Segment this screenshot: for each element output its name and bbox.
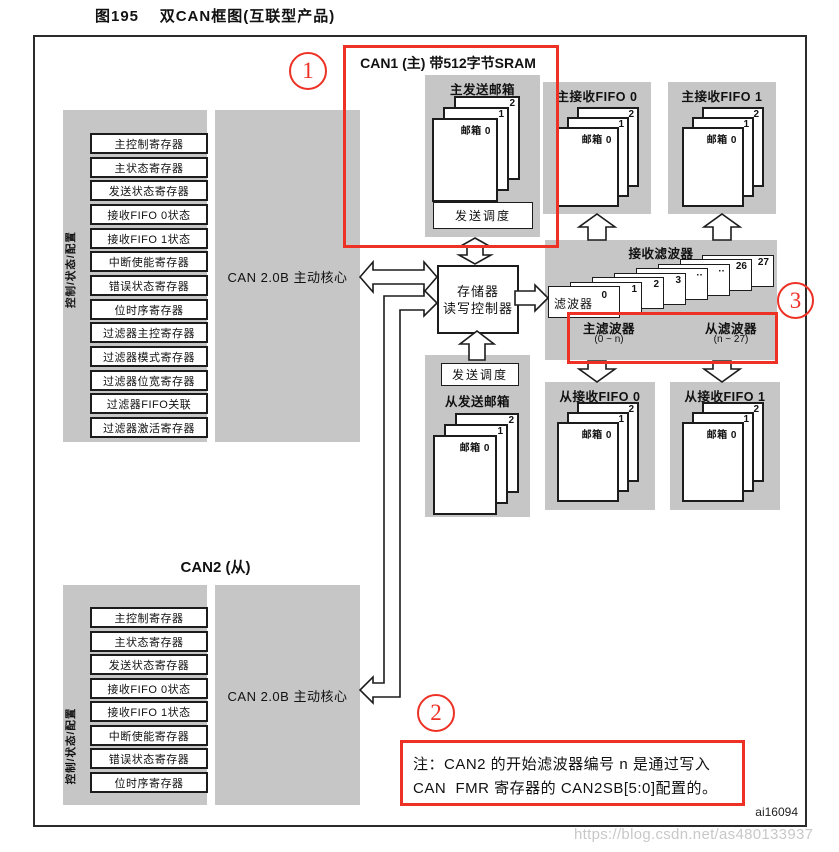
highlight-rect-can1-sram bbox=[343, 45, 559, 248]
note-line1: 注：CAN2 的开始滤波器编号 n 是通过写入 bbox=[413, 753, 710, 774]
arrow-down-filters-to-slave-fifo0 bbox=[579, 361, 615, 382]
arrow-up-filters-to-master-fifo0 bbox=[579, 214, 615, 240]
arrow-up-filters-to-master-fifo1 bbox=[704, 214, 740, 240]
arrow-bidir-memctrl-can2core bbox=[360, 290, 437, 703]
highlight-rect-filter-split bbox=[567, 312, 778, 364]
arrow-down-filters-to-slave-fifo1 bbox=[704, 361, 740, 382]
figure-title: 图195 双CAN框图(互联型产品) bbox=[95, 5, 335, 26]
annotation-circle-2: 2 bbox=[417, 694, 455, 732]
note-line2: CAN FMR 寄存器的 CAN2SB[5:0]配置的。 bbox=[413, 777, 718, 798]
note-box: 注：CAN2 的开始滤波器编号 n 是通过写入 CAN FMR 寄存器的 CAN… bbox=[400, 740, 745, 806]
annotation-circle-3: 3 bbox=[777, 282, 814, 319]
arrow-right-memctrl-to-filters bbox=[515, 285, 548, 311]
watermark-text: https://blog.csdn.net/as480133937 bbox=[574, 826, 813, 843]
arrow-up-slave-scheduler-to-memctrl bbox=[460, 331, 494, 360]
arrow-bidir-can1core-memctrl bbox=[360, 262, 437, 292]
annotation-circle-1: 1 bbox=[289, 52, 327, 90]
figure-canvas: 图195 双CAN框图(互联型产品) 控制/状态/配置 主控制寄存器 主状态寄存… bbox=[0, 0, 839, 852]
